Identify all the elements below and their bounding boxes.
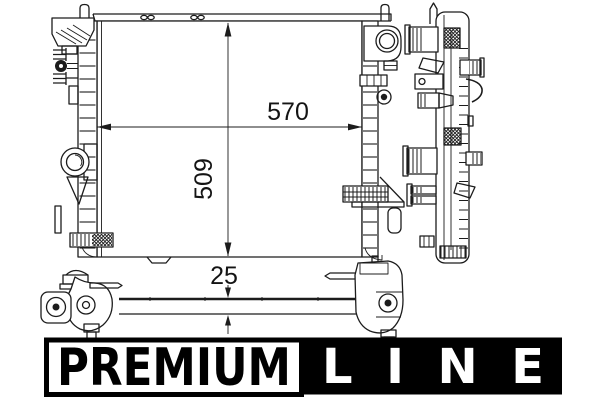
technical-drawing-page: 570 509 25 PREMIUM LINE (0, 0, 600, 400)
right-port (460, 58, 484, 77)
clip-lower (53, 72, 78, 85)
radiator-diagram: 570 509 25 PREMIUM LINE (0, 0, 600, 400)
left-top-pin (80, 5, 89, 19)
lower-comb-bracket (70, 233, 113, 247)
premium-label: PREMIUM (57, 338, 291, 398)
lower-outlet-port (403, 146, 437, 176)
brand-logo: PREMIUM LINE (47, 338, 563, 399)
twin-stub-ports (407, 184, 436, 206)
bottom-core-strip (119, 297, 358, 314)
side-view (403, 3, 484, 263)
clip-upper (53, 48, 78, 61)
left-hose-fitting (41, 271, 122, 340)
right-top-pin (381, 5, 389, 22)
valve-body (355, 261, 403, 333)
left-flange (41, 292, 71, 323)
lower-right-port (466, 152, 482, 165)
radiator-core (97, 21, 362, 263)
side-bracket-plate (415, 74, 443, 89)
filler-neck (364, 26, 401, 61)
overflow-tube (388, 208, 401, 233)
top-bar (78, 14, 391, 21)
side-hatch-bracket (343, 186, 388, 202)
clamp-band (360, 75, 387, 86)
lower-pin (55, 206, 61, 233)
height-dimension-label: 509 (190, 158, 218, 200)
width-dimension-label: 570 (267, 98, 309, 126)
depth-dimension-label: 25 (210, 262, 238, 290)
upper-inlet-port (405, 25, 438, 54)
drain-stub (420, 236, 434, 247)
